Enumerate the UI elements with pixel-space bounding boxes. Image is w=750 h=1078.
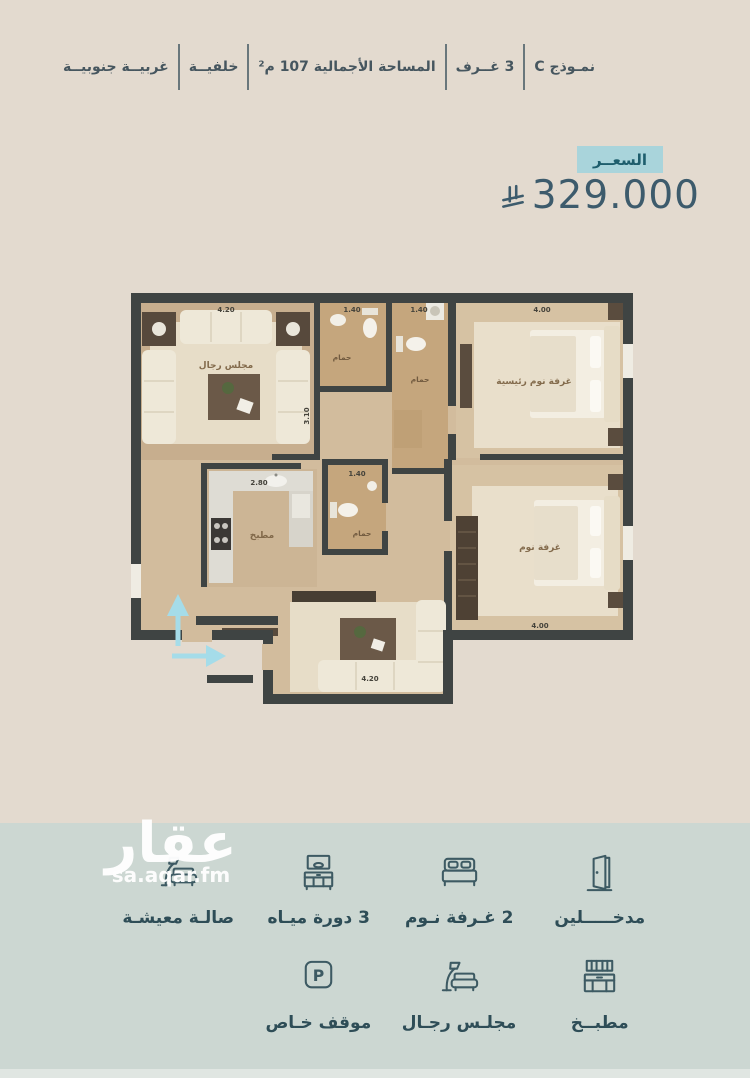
header-item-orientation: غربيــة جنوبيــة: [63, 59, 169, 75]
sofa-lamp-icon: [436, 955, 483, 1002]
dim-majlis: 4.20: [217, 306, 234, 314]
saudi-riyal-icon: [500, 183, 526, 213]
feature-kitchen: مطبــخ: [529, 955, 670, 1033]
washbasin-icon: [295, 850, 342, 897]
feature-label: مدخـــــلين: [554, 908, 645, 928]
price-amount: 329.000: [532, 176, 700, 215]
price-badge: السعــر: [577, 146, 663, 173]
feature-label: موقف خـاص: [265, 1013, 371, 1033]
dim-bath3: 1.40: [348, 470, 365, 478]
dim-living: 4.20: [361, 675, 378, 683]
feature-majlis: مجلـس رجـال: [389, 955, 530, 1033]
dim-bath1: 1.40: [343, 306, 360, 314]
dim-master: 4.00: [533, 306, 550, 314]
bed-icon: [436, 850, 483, 897]
features-row-2: مطبــخ مجلـس رجـال P موقف خـاص: [248, 955, 670, 1033]
header-separator: [523, 44, 525, 90]
header-separator: [445, 44, 447, 90]
dim-majlis-side: 3.10: [303, 407, 311, 424]
room-label-bath3: حمام: [353, 529, 372, 538]
price: 329.000: [500, 176, 700, 215]
feature-entrances: مدخـــــلين: [530, 850, 671, 928]
dim-bedroom2: 4.00: [531, 622, 548, 630]
parking-letter: P: [313, 966, 324, 985]
feature-living-room: صالـة معيشـة: [108, 850, 249, 928]
kitchen-cabinet-icon: [576, 955, 623, 1002]
header-item-position: خلفيــة: [189, 59, 239, 75]
room-label-bath1: حمام: [333, 353, 352, 362]
sofa-lamp-icon: [155, 850, 202, 897]
parking-icon: P: [295, 955, 342, 1002]
feature-parking: P موقف خـاص: [248, 955, 389, 1033]
header-separator: [178, 44, 180, 90]
feature-bathrooms: 3 دورة ميـاه: [249, 850, 390, 928]
dim-kitchen: 2.80: [250, 479, 267, 487]
room-label-kitchen: مطبخ: [250, 531, 275, 541]
feature-label: مجلـس رجـال: [402, 1013, 516, 1033]
floor-plan: مجلس رجال حمام حمام غرفة نوم رئيسية مطبخ…: [126, 288, 638, 706]
header-item-area: المساحة الأجمالية 107 م²: [258, 59, 435, 75]
door-icon: [576, 850, 623, 897]
bottom-edge-strip: [0, 1069, 750, 1078]
feature-label: صالـة معيشـة: [122, 908, 234, 928]
room-label-bedroom2: غرفة نوم: [519, 543, 561, 553]
header-separator: [247, 44, 249, 90]
dim-bath2: 1.40: [410, 306, 427, 314]
feature-label: مطبــخ: [571, 1013, 629, 1033]
feature-label: 2 غـرفة نـوم: [405, 908, 513, 928]
features-row-1: مدخـــــلين 2 غـرفة نـوم 3 دورة ميـاه: [108, 850, 670, 928]
header: نمـوذج C 3 غــرف المساحة الأجمالية 107 م…: [95, 42, 595, 92]
header-item-model: نمـوذج C: [534, 59, 595, 75]
room-label-bath2: حمام: [411, 375, 430, 384]
listing-flyer: { "header": { "items": [ {"label": "نمـو…: [0, 0, 750, 1078]
header-item-rooms: 3 غــرف: [456, 59, 515, 75]
room-label-master: غرفة نوم رئيسية: [496, 377, 572, 387]
room-label-majlis: مجلس رجال: [199, 361, 253, 371]
feature-label: 3 دورة ميـاه: [268, 908, 371, 928]
feature-bedrooms: 2 غـرفة نـوم: [389, 850, 530, 928]
